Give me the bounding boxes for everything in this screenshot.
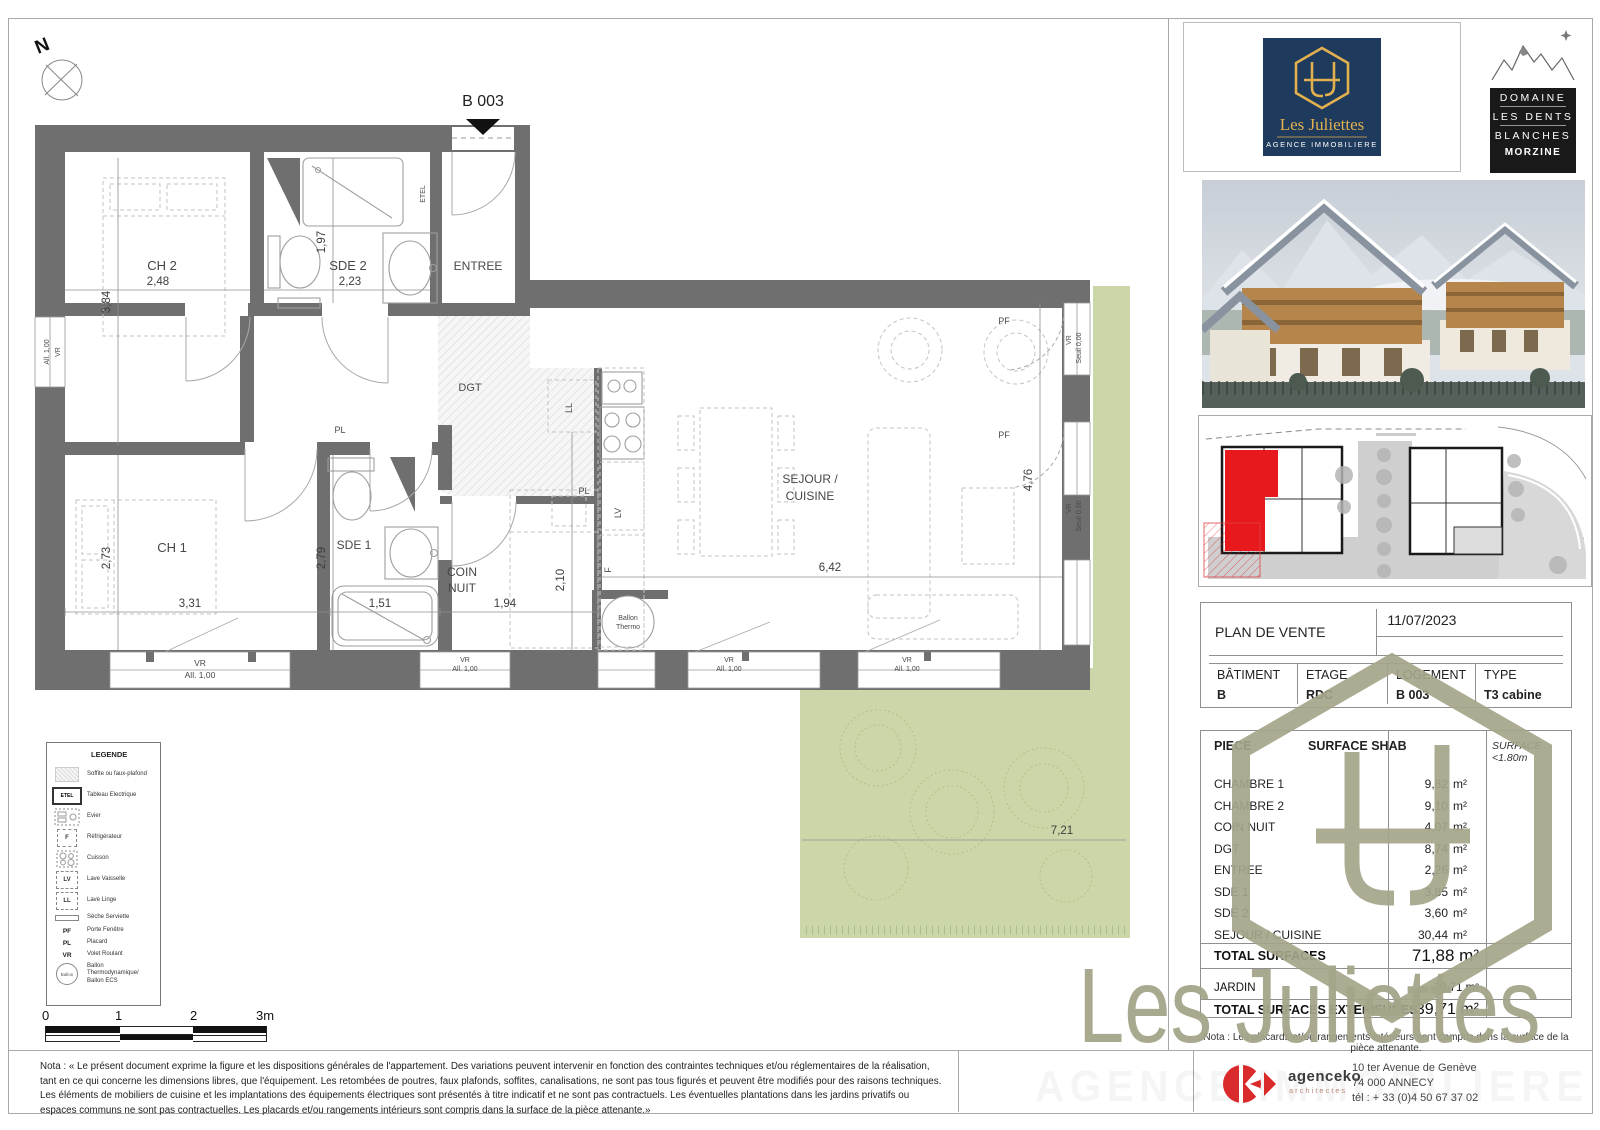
pl-key: PL bbox=[63, 940, 71, 947]
dim-sde2-w: 2,23 bbox=[339, 276, 361, 288]
tag-seuil-2: Seuil 0,00 bbox=[1076, 500, 1083, 531]
header-type: TYPE bbox=[1475, 664, 1565, 684]
room-label-sde2: SDE 2 bbox=[329, 258, 367, 273]
brand-name: Les Juliettes bbox=[1280, 115, 1365, 134]
dim-ch2-h: 3,84 bbox=[101, 290, 113, 313]
surface-row: SDE 13,85m² bbox=[1201, 885, 1571, 907]
title-block: PLAN DE VENTE 11/07/2023 BÂTIMENT ETAGE … bbox=[1200, 602, 1572, 708]
tag-pl-2: PL bbox=[578, 486, 589, 496]
legend-title: LEGENDE bbox=[91, 750, 160, 759]
unit-label: B 003 bbox=[462, 93, 504, 110]
tag-vr-r2: VR bbox=[1066, 503, 1073, 513]
mountains-icon bbox=[1490, 22, 1576, 88]
tag-all-3: All. 1,00 bbox=[716, 666, 741, 673]
col-piece: PIECE bbox=[1214, 739, 1252, 753]
scale-2: 2 bbox=[190, 1008, 197, 1023]
plan-de-vente-title: PLAN DE VENTE bbox=[1209, 609, 1376, 655]
column-divider bbox=[1168, 19, 1169, 1050]
tag-lv: LV bbox=[613, 508, 623, 518]
dishwasher-icon: LV bbox=[56, 871, 78, 889]
dim-ch1-h: 2,73 bbox=[101, 547, 113, 569]
dim-ch2-w: 2,48 bbox=[147, 276, 169, 288]
tag-ballon-1: Ballon bbox=[618, 615, 638, 622]
dim-sejour-h: 4,76 bbox=[1023, 469, 1035, 491]
tag-all-4: All. 1,00 bbox=[894, 666, 919, 673]
scale-1: 1 bbox=[115, 1008, 122, 1023]
tag-vr-4: VR bbox=[902, 657, 912, 664]
site-plan bbox=[1198, 415, 1592, 587]
room-label-entree: ENTREE bbox=[454, 259, 503, 273]
jardin-hatch bbox=[1204, 523, 1260, 577]
surface-row: CHAMBRE 29,10m² bbox=[1201, 799, 1571, 821]
dim-ch1-w: 3,31 bbox=[179, 598, 201, 610]
pf-key: PF bbox=[63, 928, 71, 935]
value-type: T3 cabine bbox=[1475, 684, 1565, 704]
scale-bar: 0 1 2 3m bbox=[45, 1008, 269, 1042]
sink-icon bbox=[54, 808, 80, 826]
dim-sejour-w: 6,42 bbox=[819, 562, 841, 574]
surface-nota: Nota : Les placards et/ou rangements int… bbox=[1195, 1032, 1577, 1054]
surface-row: SDE 23,60m² bbox=[1201, 906, 1571, 928]
floor-plan: 7,21 bbox=[0, 0, 1168, 1050]
surface-row: COIN NUIT4,07m² bbox=[1201, 820, 1571, 842]
dim-sde2-h: 1,97 bbox=[316, 231, 328, 253]
room-label-coin-2: NUIT bbox=[448, 581, 477, 595]
electrical-panel-icon: ETEL bbox=[52, 787, 82, 805]
value-batiment: B bbox=[1209, 684, 1297, 704]
north-label: N bbox=[32, 34, 53, 59]
hob-icon bbox=[56, 850, 78, 868]
soffit-hatch bbox=[438, 316, 600, 496]
room-label-dgt: DGT bbox=[458, 382, 482, 394]
dim-sde1-h: 2,79 bbox=[316, 547, 328, 569]
tag-ballon-2: Thermo bbox=[616, 624, 640, 631]
water-heater-icon: Ballon bbox=[56, 963, 78, 985]
tag-vr-3: VR bbox=[724, 657, 734, 664]
agenceko-logo bbox=[1220, 1062, 1284, 1106]
scale-0: 0 bbox=[42, 1008, 49, 1023]
surface-row: DGT8,74m² bbox=[1201, 842, 1571, 864]
col-lt180: SURFACE <1.80m bbox=[1492, 740, 1571, 764]
tag-f: F bbox=[603, 567, 613, 573]
tag-all-2: All. 1,00 bbox=[452, 666, 477, 673]
les-juliettes-logo: Les Juliettes AGENCE IMMOBILIERE bbox=[1263, 38, 1381, 156]
tag-pf-2: PF bbox=[998, 430, 1010, 440]
plan-de-vente-sheet: 7,21 bbox=[0, 0, 1600, 1130]
soffit-icon bbox=[55, 767, 79, 782]
dim-sde1-w: 1,51 bbox=[369, 598, 391, 610]
domaine-city: MORZINE bbox=[1490, 147, 1576, 158]
tag-ll: LL bbox=[564, 403, 574, 413]
header-logement: LOGEMENT bbox=[1387, 664, 1475, 684]
tag-etel: ETEL bbox=[420, 185, 427, 203]
room-label-coin-1: COIN bbox=[447, 565, 477, 579]
total-ext-row: TOTAL SURFACES EXTERIEURES39,71 m² bbox=[1201, 999, 1571, 1019]
tag-seuil-1: Seuil 0,00 bbox=[1076, 332, 1083, 363]
tag-all-1: All. 1,00 bbox=[185, 670, 216, 680]
tag-vr-left: VR bbox=[55, 347, 62, 357]
room-label-sejour-1: SEJOUR / bbox=[782, 472, 838, 486]
room-label-ch2: CH 2 bbox=[147, 258, 177, 273]
north-compass-icon: N bbox=[32, 34, 82, 100]
tag-all-left: All. 1,00 bbox=[44, 339, 51, 364]
jardin-row: JARDIN 39,71 m² bbox=[1201, 979, 1571, 997]
room-label-ch1: CH 1 bbox=[157, 540, 187, 555]
room-label-sde1: SDE 1 bbox=[337, 538, 372, 552]
domaine-text-block: DOMAINE LES DENTS BLANCHES MORZINE bbox=[1490, 88, 1576, 173]
vr-key: VR bbox=[62, 952, 71, 959]
tag-pf-1: PF bbox=[998, 316, 1010, 326]
value-logement: B 003 bbox=[1387, 684, 1475, 704]
value-etage: RDC bbox=[1297, 684, 1387, 704]
col-shab: SURFACE SHAB bbox=[1308, 739, 1407, 753]
footer-nota: Nota : « Le présent document exprime la … bbox=[40, 1060, 942, 1119]
plan-date: 11/07/2023 bbox=[1377, 609, 1563, 637]
surface-row: ENTREE2,26m² bbox=[1201, 863, 1571, 885]
towel-rail-icon bbox=[55, 915, 79, 921]
brand-tagline: AGENCE IMMOBILIERE bbox=[1266, 140, 1378, 149]
scale-3m: 3m bbox=[256, 1008, 274, 1023]
legend: LEGENDE Soffite ou faux-plafond ETELTabl… bbox=[46, 742, 161, 1006]
footer-divider-2 bbox=[1193, 1050, 1194, 1112]
washer-icon: LL bbox=[56, 892, 78, 910]
header-batiment: BÂTIMENT bbox=[1209, 664, 1297, 684]
tag-pl-1: PL bbox=[334, 425, 345, 435]
building-b bbox=[1410, 448, 1502, 554]
agency-address: 10 ter Avenue de Genève 74 000 ANNECY té… bbox=[1352, 1061, 1478, 1106]
agency-logo-box: Les Juliettes AGENCE IMMOBILIERE bbox=[1183, 22, 1461, 172]
fridge-icon: F bbox=[57, 829, 77, 847]
domaine-logo: DOMAINE LES DENTS BLANCHES MORZINE bbox=[1490, 22, 1576, 173]
header-etage: ETAGE bbox=[1297, 664, 1387, 684]
total-surfaces-row: TOTAL SURFACES71,88 m² bbox=[1201, 943, 1571, 969]
dim-coin-h: 2,10 bbox=[555, 569, 567, 591]
footer-divider-1 bbox=[958, 1050, 959, 1112]
dim-coin-w: 1,94 bbox=[494, 598, 517, 610]
surface-table: PIECE SURFACE SHAB SURFACE <1.80m CHAMBR… bbox=[1200, 730, 1572, 1018]
surface-row: CHAMBRE 19,82m² bbox=[1201, 777, 1571, 799]
building-photo bbox=[1202, 180, 1585, 408]
dim-jardin: 7,21 bbox=[1051, 825, 1073, 837]
room-label-sejour-2: CUISINE bbox=[786, 489, 835, 503]
tag-vr-r1: VR bbox=[1066, 335, 1073, 345]
tag-vr-1: VR bbox=[194, 658, 206, 668]
agency-name: agenceko bbox=[1288, 1068, 1361, 1085]
agency-subtitle: architectes bbox=[1289, 1086, 1347, 1095]
tag-vr-2: VR bbox=[460, 657, 470, 664]
